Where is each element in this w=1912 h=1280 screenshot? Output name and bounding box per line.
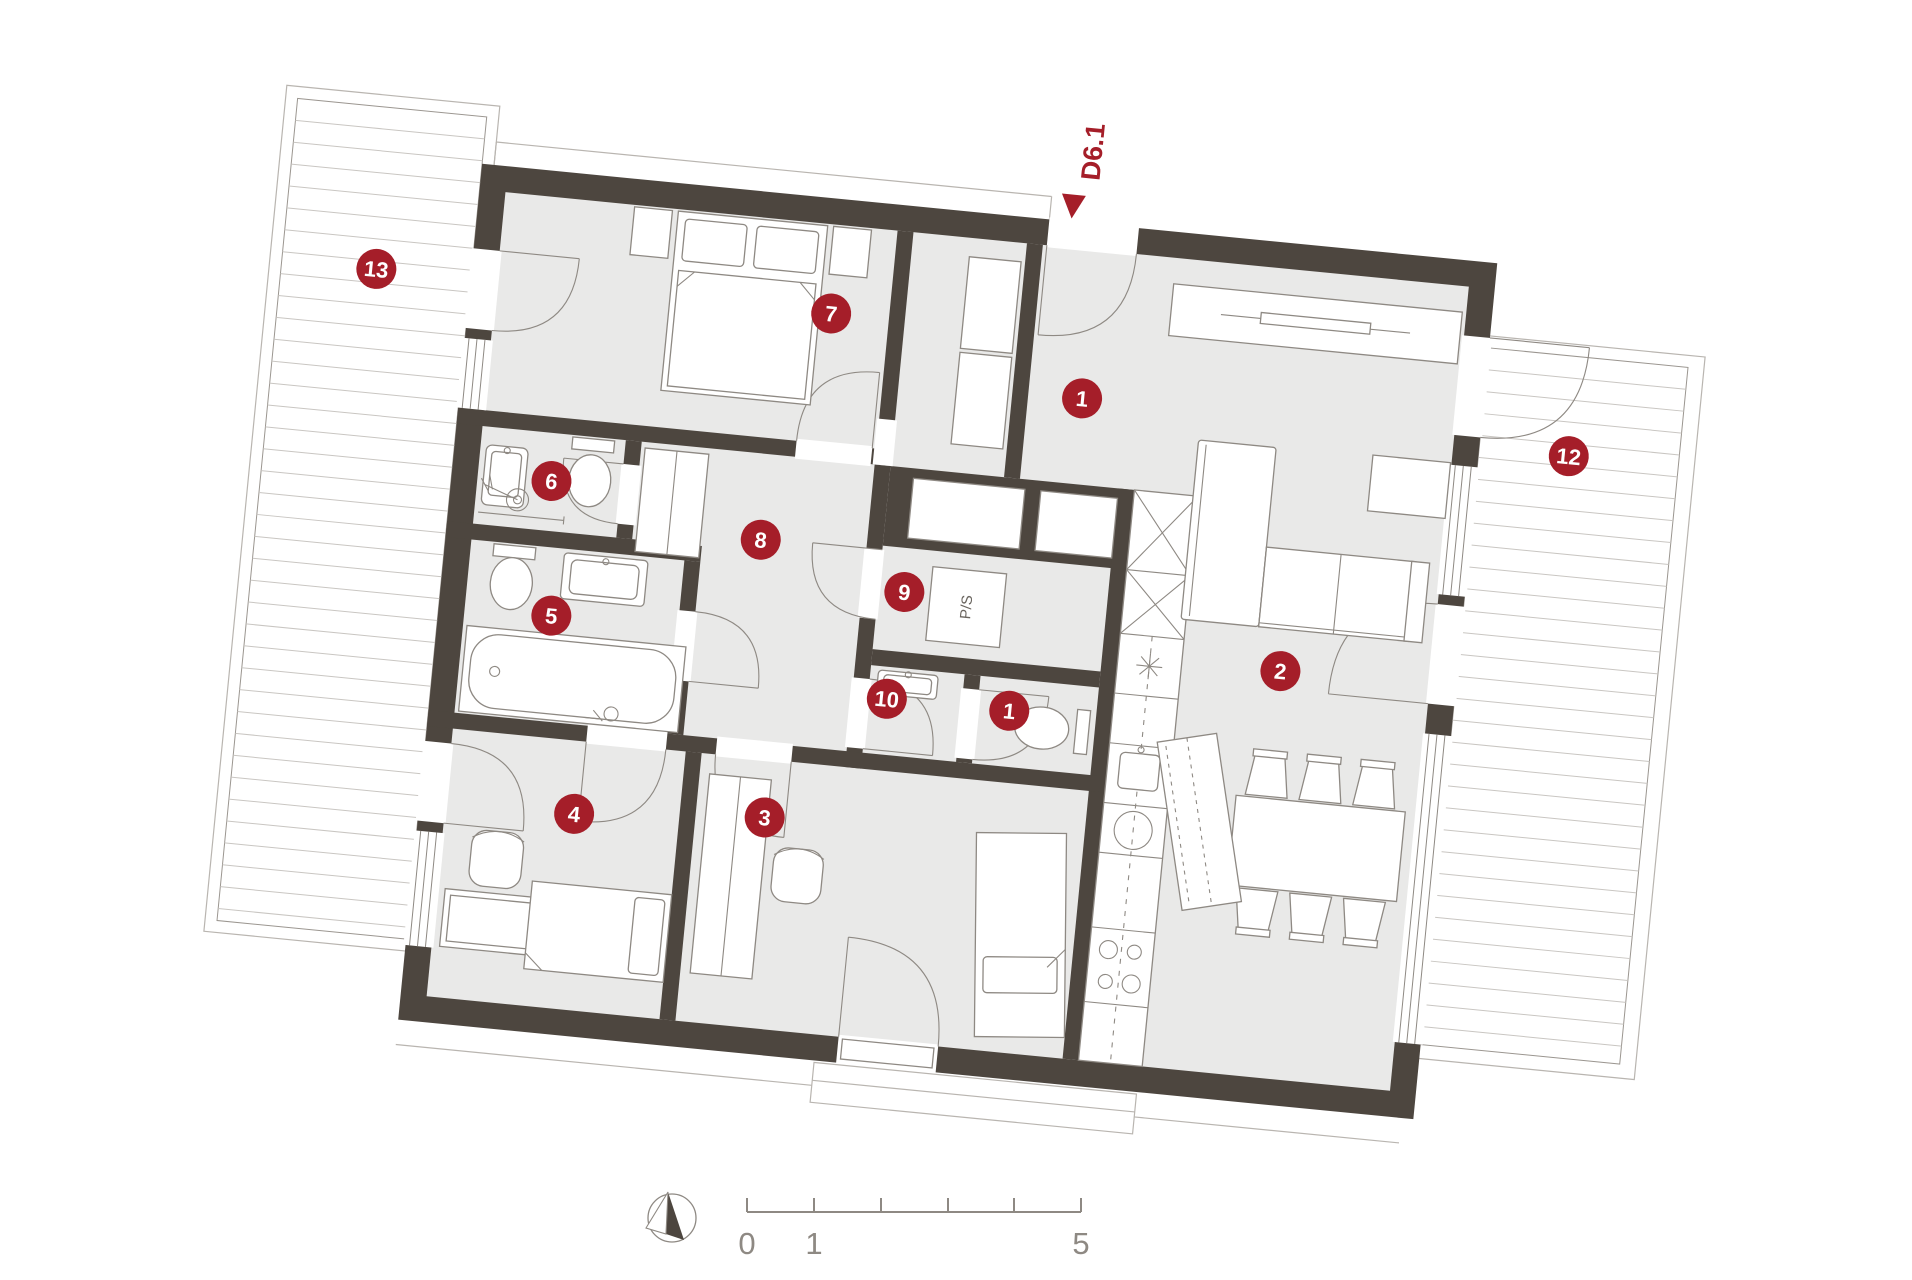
svg-text:1: 1: [1075, 386, 1090, 412]
single-bed: [974, 833, 1066, 1038]
double-bed: [661, 211, 828, 405]
scale-bar: 0 1 5: [738, 1198, 1089, 1261]
svg-text:7: 7: [824, 301, 839, 327]
svg-text:5: 5: [544, 603, 559, 629]
scale-label-5: 5: [1072, 1226, 1089, 1261]
north-arrow-icon: [646, 1192, 696, 1242]
entry-door-label: D6.1: [1060, 121, 1111, 222]
desk-chair: [770, 847, 825, 906]
floor-plan-drawing: P/S: [0, 0, 1912, 1280]
washer-dryer: P/S: [926, 567, 1007, 648]
scale-label-0: 0: [738, 1226, 755, 1261]
dining-table: [1227, 795, 1405, 901]
floor-plan-page: P/S: [0, 0, 1912, 1280]
unit-door-code: D6.1: [1075, 122, 1110, 182]
svg-text:13: 13: [363, 256, 390, 283]
single-bed: [524, 881, 672, 982]
svg-text:9: 9: [897, 579, 912, 605]
svg-text:3: 3: [757, 805, 772, 831]
nightstand: [630, 207, 673, 258]
wardrobe: [951, 352, 1012, 449]
coffee-table: [1367, 455, 1450, 518]
svg-text:6: 6: [544, 468, 559, 494]
svg-text:12: 12: [1555, 443, 1582, 470]
svg-text:8: 8: [753, 527, 768, 553]
svg-text:1: 1: [1002, 698, 1017, 724]
wall-niche: [908, 478, 1025, 549]
washer-dryer-label: P/S: [957, 594, 976, 620]
wall-niche: [1035, 491, 1117, 558]
washbasin: [560, 553, 648, 607]
wardrobe: [960, 257, 1021, 354]
entry-arrow-icon: [1060, 193, 1086, 219]
hall-wardrobe: [635, 448, 709, 558]
scale-label-1: 1: [805, 1226, 822, 1261]
svg-text:2: 2: [1273, 659, 1288, 685]
apartment: P/S: [392, 162, 1597, 1171]
nightstand: [829, 226, 872, 277]
svg-text:10: 10: [873, 686, 900, 713]
desk-chair: [468, 829, 525, 890]
